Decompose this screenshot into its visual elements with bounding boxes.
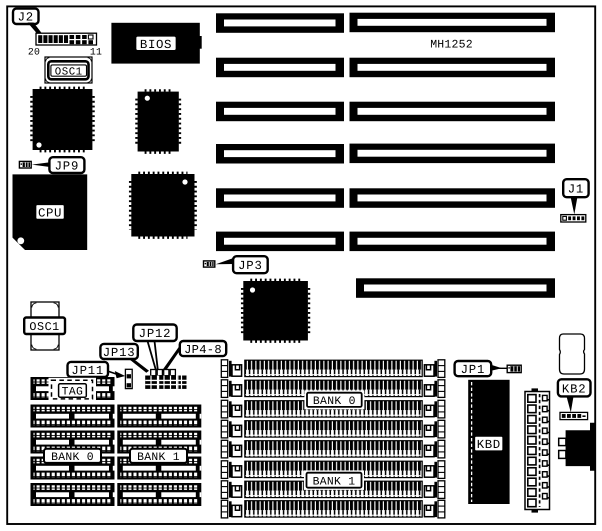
svg-text:BANK 0: BANK 0 bbox=[51, 452, 94, 464]
svg-text:KB2: KB2 bbox=[562, 382, 587, 396]
svg-text:11: 11 bbox=[90, 46, 102, 57]
svg-text:JP1: JP1 bbox=[461, 363, 486, 377]
svg-text:BANK 1: BANK 1 bbox=[137, 452, 180, 464]
svg-text:CPU: CPU bbox=[38, 206, 62, 220]
svg-text:BIOS: BIOS bbox=[140, 38, 172, 52]
svg-text:BANK 1: BANK 1 bbox=[313, 476, 356, 488]
svg-text:JP4-8: JP4-8 bbox=[184, 343, 222, 357]
svg-text:BANK 0: BANK 0 bbox=[313, 396, 356, 408]
svg-text:20: 20 bbox=[28, 46, 40, 57]
svg-text:JP9: JP9 bbox=[55, 160, 80, 174]
svg-text:OSC1: OSC1 bbox=[55, 66, 83, 78]
svg-text:JP13: JP13 bbox=[103, 346, 136, 360]
svg-text:J1: J1 bbox=[568, 183, 584, 197]
svg-text:JP12: JP12 bbox=[139, 327, 172, 341]
svg-text:JP11: JP11 bbox=[71, 364, 104, 378]
svg-text:MH1252: MH1252 bbox=[430, 38, 473, 51]
svg-text:JP3: JP3 bbox=[238, 259, 263, 273]
svg-text:KBD: KBD bbox=[477, 438, 501, 452]
svg-text:OSC1: OSC1 bbox=[29, 320, 59, 334]
svg-text:TAG: TAG bbox=[62, 387, 84, 399]
